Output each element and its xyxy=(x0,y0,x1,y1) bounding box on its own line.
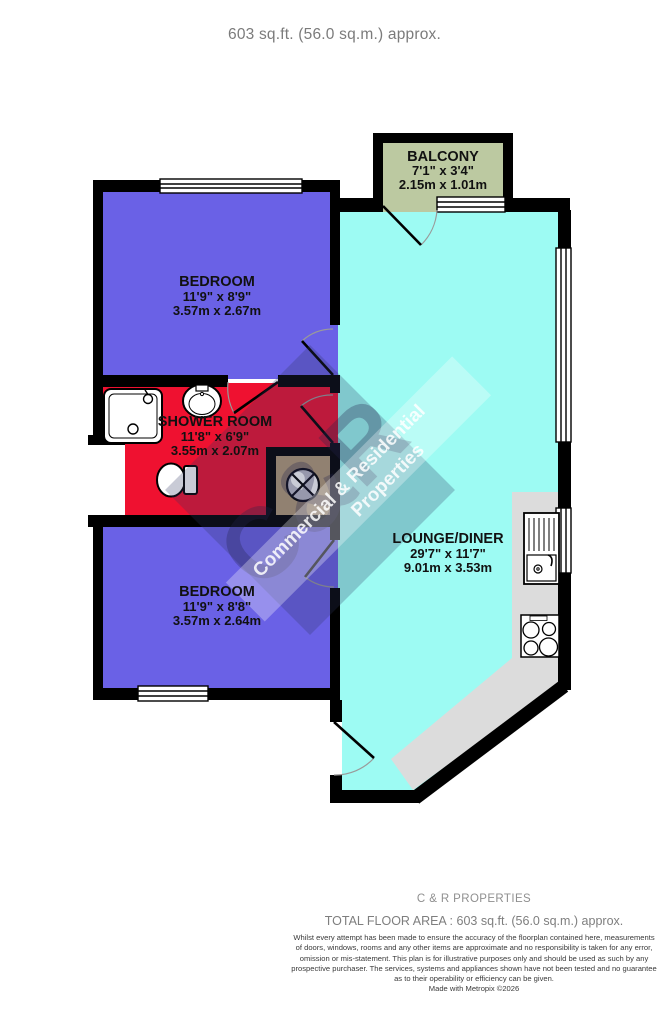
company-name: C & R PROPERTIES xyxy=(278,893,669,905)
svg-text:3.57m x 2.64m: 3.57m x 2.64m xyxy=(173,613,261,628)
balcony-door-opening xyxy=(383,198,437,212)
floorplan-page: 603 sq.ft. (56.0 sq.m.) approx. xyxy=(0,0,669,1024)
svg-text:SHOWER ROOM: SHOWER ROOM xyxy=(158,414,272,430)
disclaimer-line: prospective purchaser. The services, sys… xyxy=(278,964,669,974)
disclaimer-line: omission or mis-statement. This plan is … xyxy=(278,954,669,964)
svg-text:3.57m x 2.67m: 3.57m x 2.67m xyxy=(173,303,261,318)
room-label-balcony: BALCONY 7'1" x 3'4" 2.15m x 1.01m xyxy=(399,149,487,192)
svg-text:29'7" x 11'7": 29'7" x 11'7" xyxy=(410,546,486,561)
svg-text:7'1" x 3'4": 7'1" x 3'4" xyxy=(412,163,474,178)
disclaimer-line: of doors, windows, rooms and any other i… xyxy=(278,943,669,953)
metropix-credit: Made with Metropix ©2026 xyxy=(278,984,669,994)
room-label-bedroom-2: BEDROOM 11'9" x 8'8" 3.57m x 2.64m xyxy=(173,584,261,628)
svg-text:3.55m x 2.07m: 3.55m x 2.07m xyxy=(171,443,259,458)
footer: C & R PROPERTIES TOTAL FLOOR AREA : 603 … xyxy=(278,893,669,995)
window-bedroom2 xyxy=(138,686,208,701)
kitchen-sink-icon xyxy=(524,513,559,584)
svg-text:2.15m x 1.01m: 2.15m x 1.01m xyxy=(399,177,487,192)
disclaimer-line: Whilst every attempt has been made to en… xyxy=(278,933,669,943)
window-bedroom1 xyxy=(160,179,302,193)
window-lounge-upper xyxy=(556,248,571,442)
svg-text:BEDROOM: BEDROOM xyxy=(179,584,255,600)
basin-icon xyxy=(183,385,221,418)
svg-text:LOUNGE/DINER: LOUNGE/DINER xyxy=(392,531,504,547)
disclaimer: Whilst every attempt has been made to en… xyxy=(278,933,669,995)
svg-text:9.01m x 3.53m: 9.01m x 3.53m xyxy=(404,560,492,575)
shower-tray-icon xyxy=(104,389,162,443)
total-floor-area: TOTAL FLOOR AREA : 603 sq.ft. (56.0 sq.m… xyxy=(278,914,669,928)
floorplan-drawing: C&R Commercial & Residential Properties … xyxy=(0,0,669,1024)
disclaimer-line: as to their operability or efficiency ca… xyxy=(278,974,669,984)
window-balcony-side xyxy=(437,197,505,212)
svg-text:11'9" x 8'8": 11'9" x 8'8" xyxy=(183,599,251,614)
svg-text:11'8" x 6'9": 11'8" x 6'9" xyxy=(181,429,249,444)
room-label-bedroom-1: BEDROOM 11'9" x 8'9" 3.57m x 2.67m xyxy=(173,274,261,318)
svg-text:11'9" x 8'9": 11'9" x 8'9" xyxy=(183,289,251,304)
svg-text:BEDROOM: BEDROOM xyxy=(179,274,255,290)
hob-icon xyxy=(521,615,559,657)
